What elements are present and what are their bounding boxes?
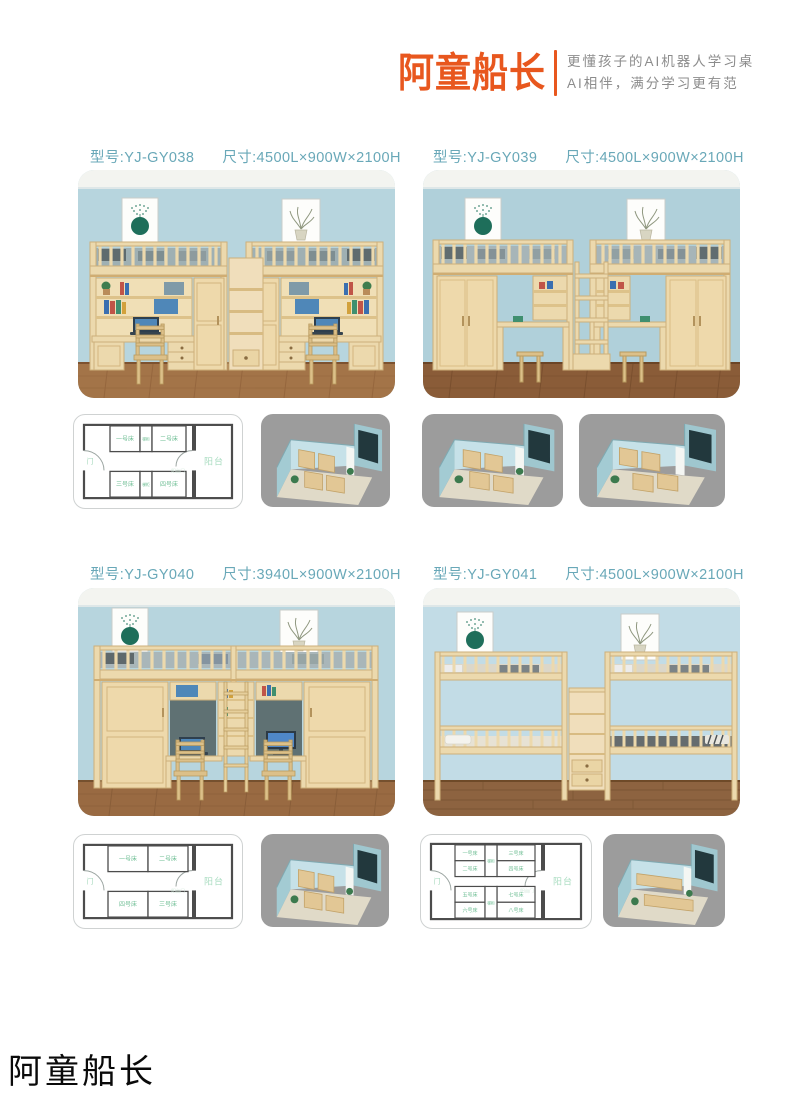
product-3-room-render [261, 834, 389, 927]
catalog-page: 阿童船长 更懂孩子的AI机器人学习桌 AI相伴，满分学习更有范 型号:YJ-GY… [0, 0, 800, 1090]
product-4-photo [423, 588, 740, 816]
bunk-bed-scene [423, 588, 740, 816]
bed-label: 二号床 [159, 855, 177, 863]
bed-label: 六号床 [463, 907, 478, 914]
product-3-floorplan: 一号床 二号床 四号床 三号床 阳台 阳台门 门 [73, 834, 243, 929]
bed-label: 二号床 [160, 435, 178, 443]
dimensions: 尺寸:4500L×900W×2100H [222, 146, 401, 167]
bed-label: 四号床 [119, 900, 137, 908]
brand-logo: 阿童船长 [398, 53, 546, 93]
brand-header: 阿童船长 更懂孩子的AI机器人学习桌 AI相伴，满分学习更有范 [398, 50, 754, 96]
brand-tagline: 更懂孩子的AI机器人学习桌 AI相伴，满分学习更有范 [567, 51, 754, 94]
floorplan-drawing: 一号床 二号床 三号床 四号床 梯柜 梯柜 阳台 阳台门 门 [74, 415, 242, 508]
footer-brand: 阿童船长 [8, 1044, 156, 1093]
product-2-header: 型号:YJ-GY039 尺寸:4500L×900W×2100H [433, 146, 744, 167]
bed-label: 三号床 [159, 900, 177, 908]
product-2-room-render-angle-1 [422, 414, 563, 507]
model-number: 型号:YJ-GY041 [433, 563, 537, 584]
bed-label: 四号床 [509, 866, 524, 873]
room-3d-render [422, 414, 563, 507]
room-3d-render [261, 834, 389, 927]
room-3d-render [603, 834, 725, 927]
brand-divider [554, 50, 557, 96]
product-4-header: 型号:YJ-GY041 尺寸:4500L×900W×2100H [433, 563, 744, 584]
bed-label: 一号床 [116, 435, 134, 443]
product-4-room-render [603, 834, 725, 927]
door-label: 门 [86, 457, 93, 466]
bed-label: 八号床 [509, 907, 524, 914]
room-3d-render [579, 414, 725, 507]
loft-bed-scene [423, 170, 740, 398]
bed-label: 三号床 [116, 480, 134, 488]
product-1-photo [78, 170, 395, 398]
balcony-door-label: 阳台门 [520, 887, 534, 894]
loft-bed-scene [78, 170, 395, 398]
product-4-floorplan: 一号床 三号床 二号床 四号床 五号床 七号床 六号床 八号床 梯柜 梯柜 阳台… [420, 834, 592, 929]
room-3d-render [261, 414, 390, 507]
stair-cabinet-label: 梯柜 [142, 437, 150, 442]
dimensions: 尺寸:4500L×900W×2100H [565, 146, 744, 167]
balcony-label: 阳台 [553, 876, 573, 887]
balcony-label: 阳台 [204, 876, 224, 887]
bed-label: 一号床 [119, 855, 137, 863]
dimensions: 尺寸:4500L×900W×2100H [565, 563, 744, 584]
floorplan-drawing: 一号床 三号床 二号床 四号床 五号床 七号床 六号床 八号床 梯柜 梯柜 阳台… [421, 835, 591, 928]
door-label: 门 [86, 877, 93, 886]
bed-label: 二号床 [463, 866, 478, 873]
door-label: 门 [433, 877, 440, 886]
model-number: 型号:YJ-GY039 [433, 146, 537, 167]
loft-bed-scene [78, 588, 395, 816]
product-3-header: 型号:YJ-GY040 尺寸:3940L×900W×2100H [90, 563, 401, 584]
balcony-door-label: 阳台门 [171, 467, 185, 474]
balcony-label: 阳台 [204, 456, 224, 467]
bed-label: 三号床 [509, 850, 524, 857]
balcony-door-label: 阳台门 [171, 887, 185, 894]
dimensions: 尺寸:3940L×900W×2100H [222, 563, 401, 584]
stair-cabinet-label: 梯柜 [142, 482, 150, 487]
tagline-line2: AI相伴，满分学习更有范 [567, 73, 754, 95]
model-number: 型号:YJ-GY040 [90, 563, 194, 584]
product-1-room-render [261, 414, 390, 507]
product-2-photo [423, 170, 740, 398]
product-1-header: 型号:YJ-GY038 尺寸:4500L×900W×2100H [90, 146, 401, 167]
product-1-floorplan: 一号床 二号床 三号床 四号床 梯柜 梯柜 阳台 阳台门 门 [73, 414, 243, 509]
stair-cabinet-label: 梯柜 [487, 900, 495, 905]
product-2-room-render-angle-2 [579, 414, 725, 507]
bed-label: 一号床 [463, 850, 478, 857]
model-number: 型号:YJ-GY038 [90, 146, 194, 167]
bed-label: 四号床 [160, 480, 178, 488]
product-3-photo [78, 588, 395, 816]
bed-label: 五号床 [463, 891, 478, 898]
stair-cabinet-label: 梯柜 [487, 859, 495, 864]
tagline-line1: 更懂孩子的AI机器人学习桌 [567, 51, 754, 73]
floorplan-drawing: 一号床 二号床 四号床 三号床 阳台 阳台门 门 [74, 835, 242, 928]
